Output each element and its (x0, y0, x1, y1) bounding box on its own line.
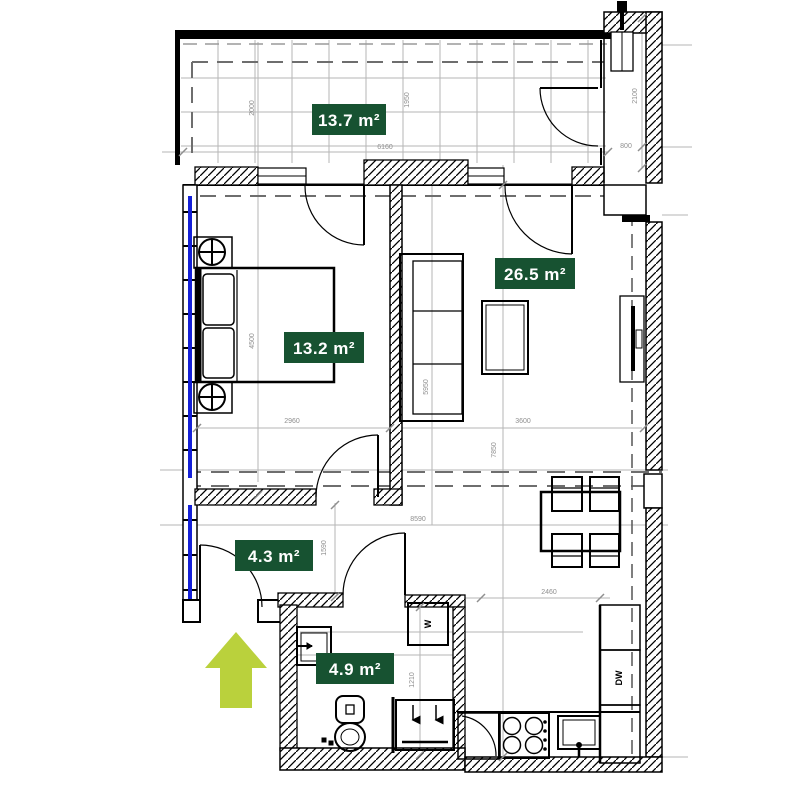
dim-bedroom-width: 2960 (284, 418, 300, 425)
left-wall (183, 185, 197, 612)
entrance-wall (183, 593, 343, 622)
dim-living-width: 3600 (515, 418, 531, 425)
bedroom-label: 13.2 m² (284, 332, 364, 363)
chair (552, 477, 582, 511)
dim-apartment-depth: 7850 (491, 442, 498, 458)
living-window (468, 168, 504, 184)
dim-bathroom-width: 1210 (409, 672, 416, 688)
chair (590, 477, 619, 511)
shaft-window (611, 32, 633, 71)
bathroom-area-text: 4.9 m² (329, 660, 381, 679)
tv (620, 296, 644, 382)
hall-area-text: 4.3 m² (248, 547, 300, 566)
shower (393, 697, 454, 753)
bedroom-window (258, 168, 306, 184)
balcony-left-wall (175, 30, 180, 165)
dim-balcony-depth-right: 1950 (404, 92, 411, 108)
toilet (322, 696, 365, 751)
dim-kitchen-width: 2460 (541, 589, 557, 596)
coffee-table (482, 301, 528, 374)
kitchen-counter (457, 712, 640, 759)
dim-living-depth: 5950 (423, 379, 430, 395)
bedroom-balcony-door (305, 186, 364, 245)
dim-balcony-width: 6160 (377, 144, 393, 151)
bathroom-door (343, 533, 405, 595)
bed (196, 268, 334, 382)
dim-shaft-height: 2100 (632, 88, 639, 104)
balcony-area-text: 13.7 m² (318, 111, 380, 130)
dim-hall-depth: 1590 (321, 540, 328, 556)
entrance-arrow-icon (205, 632, 267, 708)
bedroom-door (316, 435, 378, 497)
dim-balcony-depth-left: 2000 (249, 100, 256, 116)
nightstand-bottom (194, 382, 232, 413)
dim-shaft-width: 800 (620, 143, 632, 150)
dining-set (541, 477, 620, 567)
floor-plan-svg: W DW 6160 2000 1950 2100 800 4500 2960 5… (0, 0, 800, 800)
living-label: 26.5 m² (495, 258, 575, 289)
living-area-text: 26.5 m² (504, 265, 566, 284)
right-wall-notch-top (604, 185, 646, 215)
bathroom-label: 4.9 m² (316, 653, 394, 684)
right-wall-notch-bottom (644, 474, 662, 508)
bedroom-area-text: 13.2 m² (293, 339, 355, 358)
floor-plan: W DW 6160 2000 1950 2100 800 4500 2960 5… (0, 0, 800, 800)
washer-label: W (423, 619, 433, 628)
balcony-label: 13.7 m² (312, 104, 386, 135)
stove (499, 713, 549, 758)
dim-apartment-width: 8590 (410, 516, 426, 523)
balcony-side-door (540, 88, 598, 146)
dishwasher-label: DW (614, 670, 624, 685)
balcony-top-wall (175, 30, 612, 39)
hall-label: 4.3 m² (235, 540, 313, 571)
kitchen-sink (558, 716, 600, 757)
nightstand-top (194, 237, 232, 268)
dim-bedroom-depth: 4500 (249, 333, 256, 349)
